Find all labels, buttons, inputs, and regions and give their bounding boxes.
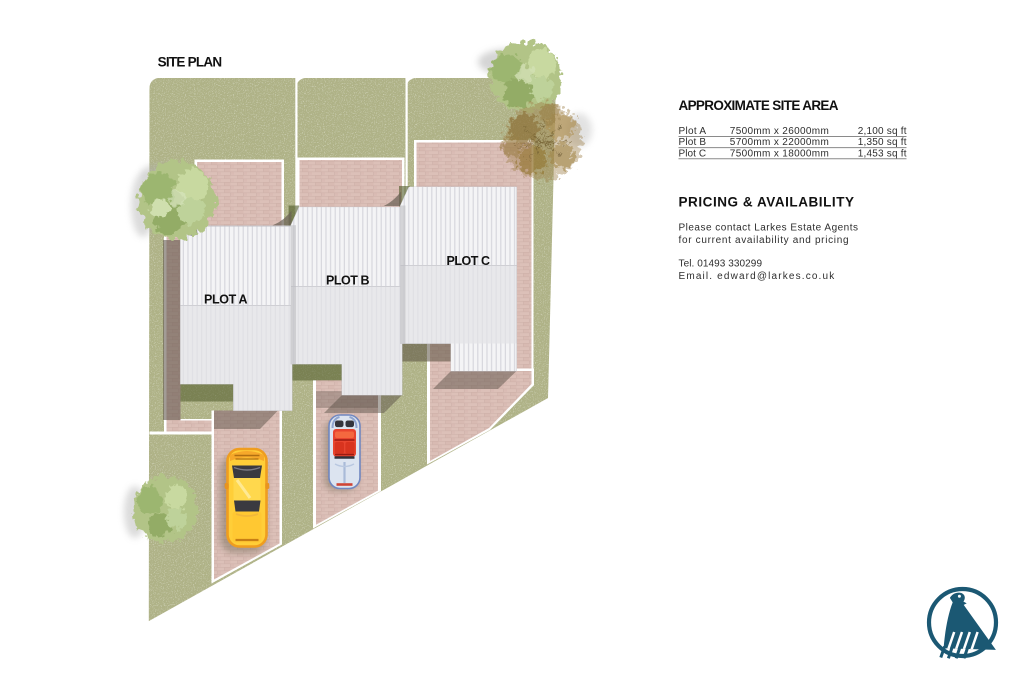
svg-text:7500mm x 26000mm: 7500mm x 26000mm	[730, 126, 829, 137]
svg-text:7500mm x 18000mm: 7500mm x 18000mm	[730, 148, 829, 159]
svg-text:SITE PLAN: SITE PLAN	[158, 54, 223, 69]
svg-text:PLOT B: PLOT B	[326, 273, 370, 287]
svg-text:1,350 sq ft: 1,350 sq ft	[858, 137, 907, 148]
svg-text:PRICING & AVAILABILITY: PRICING & AVAILABILITY	[679, 194, 855, 209]
svg-text:Tel. 01493 330299: Tel. 01493 330299	[679, 259, 763, 270]
svg-text:Plot B: Plot B	[679, 137, 707, 148]
svg-text:APPROXIMATE SITE AREA: APPROXIMATE SITE AREA	[679, 98, 839, 113]
svg-text:PLOT C: PLOT C	[447, 254, 491, 268]
svg-text:1,453 sq ft: 1,453 sq ft	[858, 148, 907, 159]
svg-text:Plot C: Plot C	[679, 148, 707, 159]
svg-text:for current availability and p: for current availability and pricing	[679, 235, 849, 246]
svg-text:Please contact Larkes Estate A: Please contact Larkes Estate Agents	[679, 223, 859, 234]
svg-text:PLOT A: PLOT A	[204, 293, 248, 307]
svg-text:2,100 sq ft: 2,100 sq ft	[858, 126, 907, 137]
svg-text:Plot A: Plot A	[679, 126, 707, 137]
svg-text:Email. edward@larkes.co.uk: Email. edward@larkes.co.uk	[679, 271, 836, 282]
svg-text:5700mm x 22000mm: 5700mm x 22000mm	[730, 137, 829, 148]
